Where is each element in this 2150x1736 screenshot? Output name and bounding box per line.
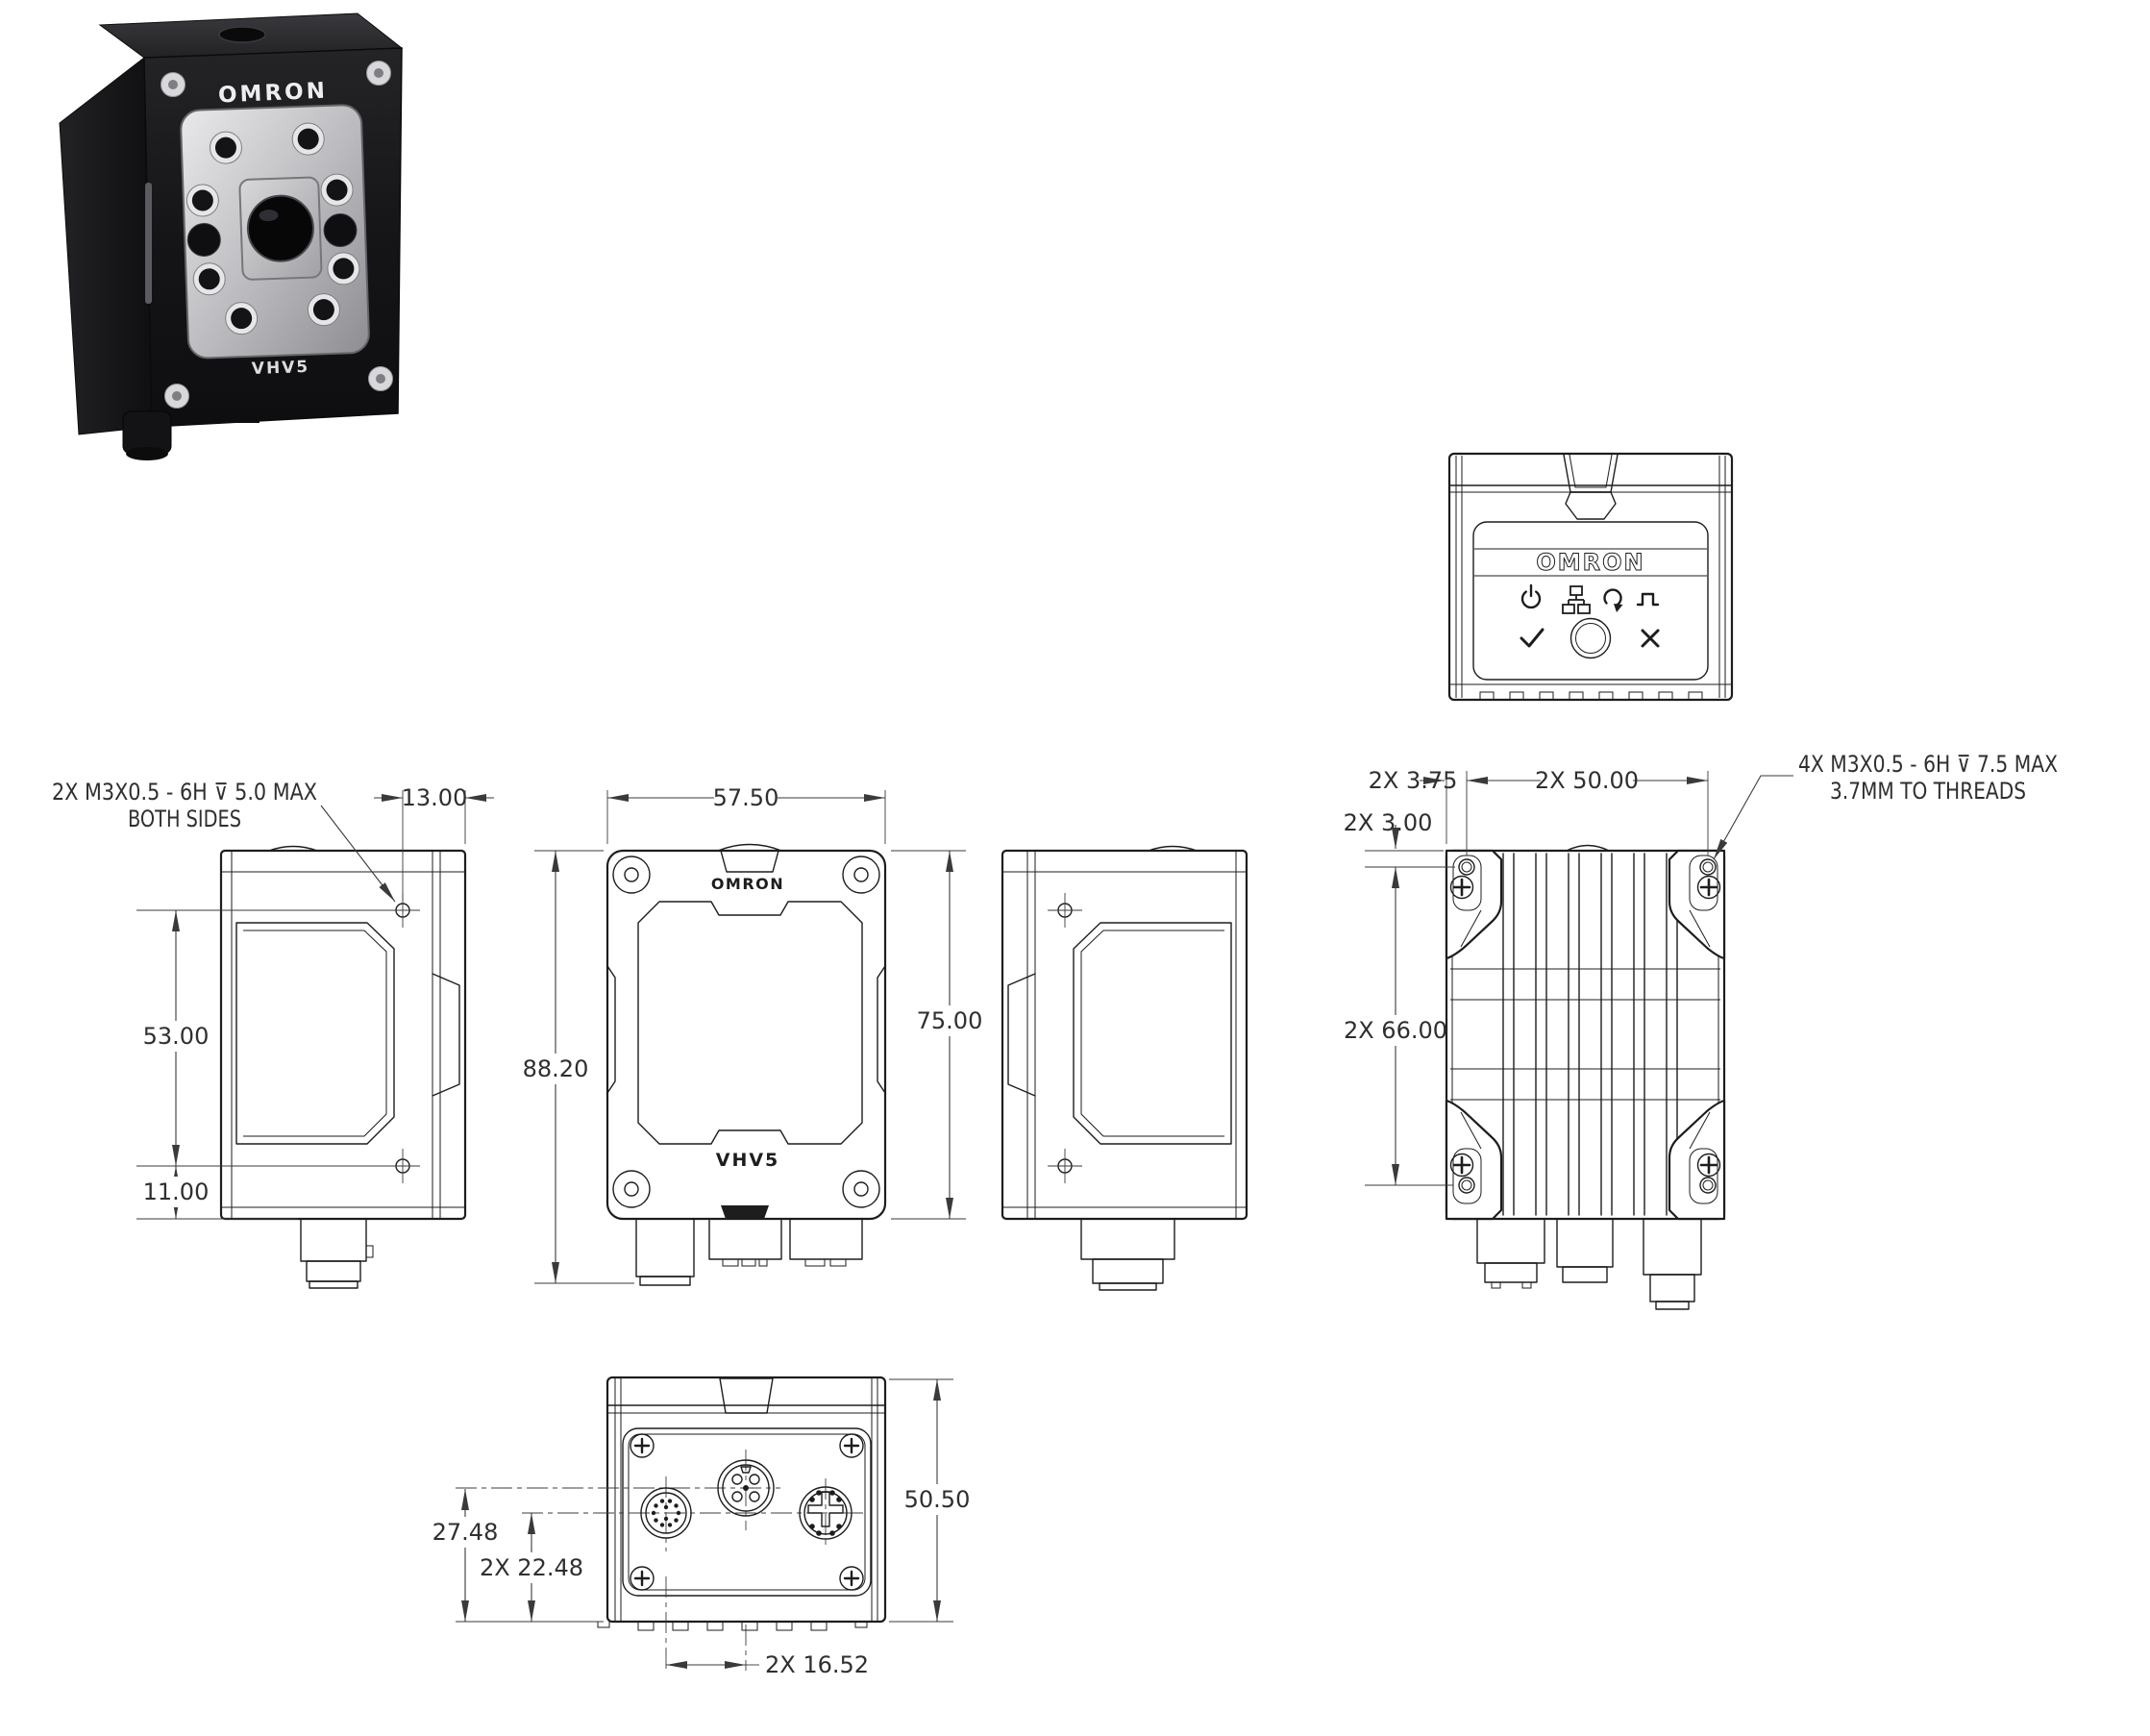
illumination-panel [181,105,370,359]
front-bottom-latch [721,1205,769,1219]
power-icon [1522,585,1540,608]
bottom-screw [630,1434,654,1457]
svg-text:2X 22.48: 2X 22.48 [480,1554,583,1581]
bottom-view-serrations [598,1622,867,1630]
side-recess-panel [1074,923,1231,1144]
top-view-serrations [1449,684,1732,700]
svg-text:27.48: 27.48 [432,1519,499,1546]
dim-rear-hole-top-offset: 2X 3.00 [1344,809,1455,867]
fail-x-icon [1643,631,1658,646]
dim-rear-hole-spacing-height: 2X 66.00 [1344,867,1453,1185]
mount-hole [1048,893,1082,928]
ethernet-icon [1563,586,1590,613]
aux-port [187,223,221,257]
dim-bottom-depth: 50.50 [456,1379,970,1622]
aux-port [323,213,357,247]
rear-connector [1643,1219,1701,1309]
camera-side-face [60,58,152,434]
left-side-view [221,847,465,1289]
svg-text:2X 3.75: 2X 3.75 [1369,767,1458,794]
heatsink-grooves [1450,969,1720,1100]
front-brand-label: OMRON [711,875,784,893]
dim-hole-offset: 13.00 [374,784,494,900]
front-connector-ethernet [790,1219,862,1266]
side-mount-rail [432,974,459,1096]
dim-hole-to-bottom: 11.00 [136,1166,298,1219]
trigger-icon [1638,594,1658,605]
front-corner-screw [843,1171,879,1207]
rear-thread-annotation-line1: 4X M3X0.5 - 6H ⊽ 7.5 MAX [1798,751,2058,778]
rear-mount-tab [1446,1101,1501,1219]
camera-lens [239,177,322,280]
front-corner-screw [613,1171,650,1207]
pass-check-icon [1521,630,1543,646]
select-button [1571,619,1611,658]
front-view: OMRON VHV5 [607,845,885,1286]
dim-front-width: 57.50 [607,782,885,844]
dim-rear-annotation: 4X M3X0.5 - 6H ⊽ 7.5 MAX 3.7MM TO THREAD… [1714,751,2058,859]
svg-text:88.20: 88.20 [523,1055,589,1082]
side-recess-panel [236,923,394,1144]
side-connector [1081,1219,1174,1290]
dim-bottom-connector-pitch: 2X 16.52 [666,1651,869,1678]
photo-model-label: VHV5 [252,358,310,379]
rear-connector [1477,1219,1545,1288]
front-model-label: VHV5 [716,1150,780,1171]
thread-annotation-line1: 2X M3X0.5 - 6H ⊽ 5.0 MAX [52,779,317,806]
side-connector [301,1219,373,1288]
top-panel-face [1473,522,1708,680]
svg-text:53.00: 53.00 [143,1023,210,1050]
svg-text:2X 16.52: 2X 16.52 [765,1651,869,1678]
svg-text:13.00: 13.00 [402,784,468,811]
dim-rear-hole-spacing-width: 2X 50.00 [1467,765,1708,856]
bottom-view [456,1377,885,1671]
top-view: OMRON [1449,454,1732,700]
svg-text:57.50: 57.50 [713,784,779,811]
dim-left-annotation: 2X M3X0.5 - 6H ⊽ 5.0 MAX BOTH SIDES [52,779,395,902]
dim-front-body-height: 75.00 [891,851,982,1219]
heatsink-fins [1503,854,1677,1215]
corner-screw [367,62,391,86]
front-connector-io [709,1219,781,1266]
bottom-face-panel [623,1428,871,1596]
svg-text:75.00: 75.00 [917,1007,983,1034]
corner-screw [369,367,393,391]
right-side-view [1002,847,1247,1291]
front-corner-screw [843,856,879,893]
rear-thread-annotation-line2: 3.7MM TO THREADS [1830,778,2026,805]
drawing-sheet: OMRON VHV5 [0,0,2150,1736]
side-mount-rail [1008,974,1035,1096]
corner-screw [165,384,189,409]
top-latch [1564,455,1618,519]
corner-screw [161,73,185,97]
svg-text:2X 66.00: 2X 66.00 [1344,1017,1447,1044]
bottom-latch [720,1378,773,1413]
dim-hole-spacing: 53.00 [136,910,388,1166]
photo-bottom-detail [208,406,259,423]
svg-text:11.00: 11.00 [143,1178,210,1205]
mount-hole [385,1149,420,1183]
mount-hole [1048,1149,1082,1183]
product-photo: OMRON VHV5 [60,13,402,460]
svg-text:2X 3.00: 2X 3.00 [1344,809,1433,836]
camera-side-rail-highlight [145,183,152,304]
svg-text:2X 50.00: 2X 50.00 [1535,767,1639,794]
camera-top-mount-hole [219,27,265,42]
svg-text:50.50: 50.50 [904,1486,971,1513]
photo-connector-tip [126,447,168,460]
technical-drawing: OMRON VHV5 [0,0,2150,1736]
front-face-panel [638,902,862,1144]
link-active-icon [1605,590,1623,612]
bottom-screw [840,1434,863,1457]
front-corner-screw [613,856,650,893]
top-brand-logo: OMRON [1536,549,1644,576]
bottom-screw [630,1567,654,1590]
rear-connector [1557,1219,1613,1282]
thread-annotation-line2: BOTH SIDES [128,806,241,832]
front-connector-power [636,1219,694,1285]
bottom-screw [840,1567,863,1590]
rear-view [1446,846,1724,1310]
photo-brand-label: OMRON [217,79,328,109]
